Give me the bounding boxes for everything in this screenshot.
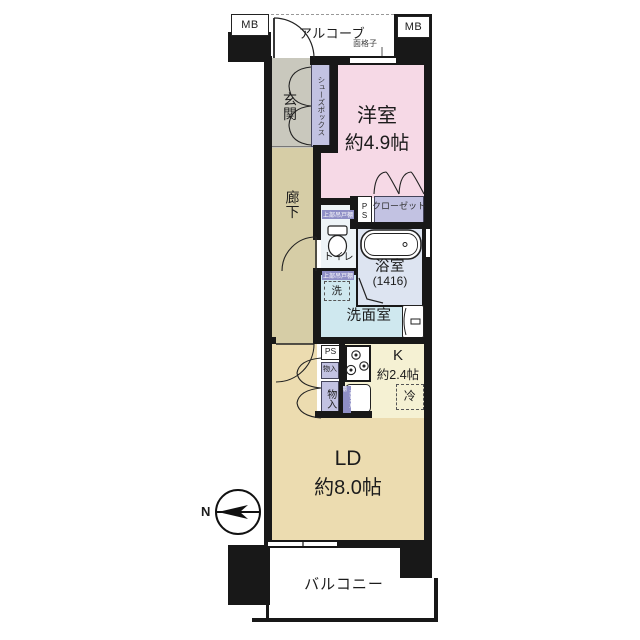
mb-right-label: MB — [405, 21, 423, 34]
washer-label: 洗 — [324, 284, 350, 298]
fridge-label: 冷 — [396, 389, 424, 404]
ld-label: LD 約8.0帖 — [288, 446, 408, 500]
mb-left-block — [228, 32, 271, 62]
wall-corridor-door-stub — [264, 337, 276, 344]
upper-cabinet-washer-text: 上部吊戸棚 — [323, 271, 353, 280]
western-room-label: 洋室 約4.9帖 — [330, 102, 424, 152]
mb-right-box: MB — [397, 16, 430, 38]
storage-large-text: 物入 — [324, 389, 336, 409]
window-grille-top — [350, 56, 396, 65]
wall-corridor-1 — [313, 145, 321, 240]
corridor-text: 廊下 — [284, 190, 300, 219]
toilet-text: トイレ — [324, 252, 354, 264]
pipe-space-upper-text: PS — [360, 202, 369, 220]
upper-cabinet-kitchen-label: 上部吊戸棚 — [343, 386, 351, 413]
kitchen-name: K — [393, 347, 403, 364]
stove-box — [345, 345, 371, 382]
kitchen-label: K 約2.4帖 — [372, 349, 424, 381]
western-room-name: 洋室 — [357, 99, 397, 128]
toilet-label: トイレ — [321, 252, 356, 264]
closet-label: クローゼット — [374, 200, 424, 212]
balcony-rail-left — [266, 600, 269, 622]
storage-large-label: 物入 — [322, 384, 338, 414]
western-room-size: 約4.9帖 — [345, 128, 409, 155]
window-grille-text: 面格子 — [353, 39, 377, 48]
fridge-text: 冷 — [404, 390, 417, 404]
balcony-left-block — [228, 545, 270, 605]
balcony-label: バルコニー — [280, 576, 408, 594]
kitchen-size: 約2.4帖 — [377, 364, 419, 383]
bath-name-text: 浴室 — [375, 259, 405, 276]
balcony-rail-bottom — [252, 618, 438, 622]
wall-left — [264, 56, 272, 548]
floor-plan: MB MB 上部吊戸棚 上部吊戸棚 上部吊戸棚 — [0, 0, 640, 640]
upper-cabinet-toilet-text: 上部吊戸棚 — [323, 210, 353, 219]
ld-name: LD — [335, 447, 362, 471]
compass-icon — [216, 490, 260, 534]
corridor-label: 廊下 — [284, 178, 301, 230]
pipe-space-kitchen-text: PS — [325, 347, 336, 357]
room-ld-strip — [272, 344, 317, 420]
shoe-box-label: シューズボックス — [313, 66, 328, 146]
ld-size: 約8.0帖 — [314, 471, 382, 500]
bath-size-label: (1416) — [360, 275, 420, 289]
washroom-text: 洗面室 — [347, 308, 392, 325]
mb-left-box: MB — [231, 14, 269, 36]
storage-small-text: 物入 — [323, 366, 337, 374]
upper-cabinet-kitchen-text: 上部吊戸棚 — [343, 386, 351, 413]
washroom-label: 洗面室 — [324, 308, 414, 324]
compass-north-text: N — [201, 505, 211, 520]
balcony-right-block — [400, 540, 432, 578]
wall-top-b — [394, 56, 424, 65]
balcony-rail-right — [434, 578, 438, 622]
window-grille-label: 面格子 — [350, 39, 380, 49]
mb-left-label: MB — [241, 19, 259, 32]
compass-north-label: N — [198, 504, 214, 520]
washer-text: 洗 — [332, 285, 343, 297]
window-ld-bottom — [268, 540, 337, 548]
upper-cabinet-toilet-label: 上部吊戸棚 — [322, 210, 354, 219]
closet-text: クローゼット — [372, 201, 426, 211]
storage-small-label: 物入 — [321, 365, 339, 375]
wall-corridor-2 — [313, 270, 321, 344]
shoe-box-text: シューズボックス — [316, 76, 325, 136]
wall-washroom-kitchen — [313, 337, 424, 344]
window-bath-right — [424, 229, 432, 257]
entrance-label: 玄関 — [281, 80, 299, 132]
pipe-space-kitchen-label: PS — [321, 346, 340, 358]
wall-ld-bottom — [337, 540, 400, 548]
balcony-text: バルコニー — [304, 576, 384, 593]
pipe-space-upper-label: PS — [358, 198, 371, 224]
entrance-text: 玄関 — [282, 92, 298, 121]
upper-cabinet-washer-label: 上部吊戸棚 — [322, 271, 354, 280]
bath-name-label: 浴室 — [360, 259, 420, 275]
alcove-dashed-border — [271, 14, 394, 15]
wall-right — [424, 56, 432, 548]
bath-size-text: (1416) — [373, 275, 408, 289]
